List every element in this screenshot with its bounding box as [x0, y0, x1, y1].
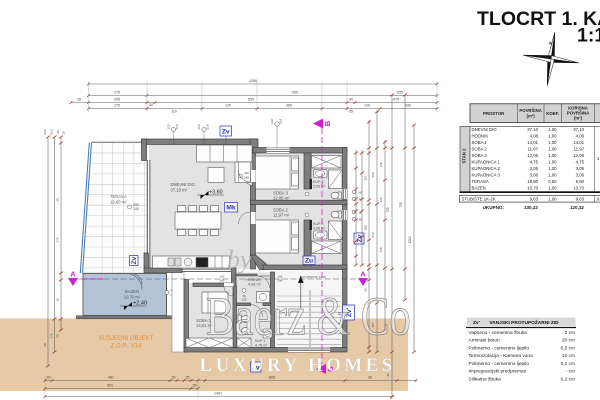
svg-text:20: 20: [47, 376, 51, 380]
svg-text:A: A: [360, 270, 366, 279]
svg-text:SOBA 1: SOBA 1: [472, 140, 488, 145]
svg-text:15: 15: [62, 131, 66, 135]
svg-text:218: 218: [175, 124, 179, 129]
svg-text:TERASA: TERASA: [110, 194, 127, 199]
svg-text:(m²): (m²): [527, 113, 536, 118]
svg-text:B: B: [323, 120, 332, 126]
svg-text:KOEF.: KOEF.: [546, 111, 559, 116]
svg-text:11,97 m²: 11,97 m²: [273, 213, 290, 218]
svg-text:by: by: [227, 245, 252, 274]
svg-text:1,00: 1,00: [548, 160, 557, 165]
svg-text:11,97: 11,97: [528, 147, 539, 152]
svg-text:3,06: 3,06: [576, 173, 585, 178]
svg-text:1,00: 1,00: [548, 134, 557, 139]
svg-text:0,2 cm: 0,2 cm: [561, 361, 575, 367]
svg-text:HODNIK: HODNIK: [246, 278, 261, 282]
svg-text:+3,60: +3,60: [209, 190, 223, 196]
svg-text:130: 130: [379, 197, 383, 202]
svg-text:Polimerno - cementno ljepilo: Polimerno - cementno ljepilo: [469, 345, 530, 351]
svg-text:Termoizolacija - Kamena vuna: Termoizolacija - Kamena vuna: [469, 353, 534, 359]
svg-text:330: 330: [405, 104, 411, 108]
svg-text:LUXURY HOMES: LUXURY HOMES: [200, 355, 396, 376]
svg-text:19,80 m²: 19,80 m²: [110, 200, 127, 205]
svg-text:2 cm: 2 cm: [565, 330, 575, 336]
svg-text:KUPAONICA 2: KUPAONICA 2: [472, 166, 501, 171]
svg-text:30: 30: [368, 376, 372, 380]
svg-text:10 cm: 10 cm: [562, 353, 575, 359]
svg-text:219: 219: [206, 124, 210, 129]
svg-text:Vapneno - cementna žbuka: Vapneno - cementna žbuka: [469, 330, 528, 336]
svg-text:25: 25: [193, 384, 197, 388]
svg-text:219: 219: [279, 119, 283, 124]
svg-text:180: 180: [364, 225, 368, 230]
svg-text:12,06: 12,06: [573, 153, 584, 158]
svg-text:20: 20: [172, 376, 176, 380]
svg-text:138: 138: [379, 247, 383, 252]
svg-text:1395: 1395: [249, 79, 257, 83]
svg-text:130,22: 130,22: [524, 205, 538, 210]
svg-text:200: 200: [244, 171, 249, 175]
svg-text:DNEVNI DIO: DNEVNI DIO: [171, 182, 196, 187]
svg-text:Armirani beton: Armirani beton: [469, 338, 501, 344]
svg-text:175: 175: [50, 333, 54, 338]
svg-text:A: A: [70, 270, 76, 279]
svg-text:PROSTOR: PROSTOR: [483, 111, 505, 116]
svg-text:SOBA 2: SOBA 2: [472, 147, 488, 152]
svg-text:3,06 m²: 3,06 m²: [313, 227, 326, 231]
svg-text:1,00: 1,00: [548, 166, 557, 171]
svg-text:3,06: 3,06: [530, 166, 539, 171]
svg-text:SOBA 3: SOBA 3: [472, 153, 488, 158]
svg-text:(m²): (m²): [574, 115, 583, 120]
svg-text:TERASA: TERASA: [472, 179, 489, 184]
svg-text:10,70 m²: 10,70 m²: [124, 295, 141, 300]
svg-text:STAN 2: STAN 2: [461, 148, 466, 164]
svg-text:Zv': Zv': [473, 320, 480, 326]
svg-text:120: 120: [225, 104, 231, 108]
svg-text:Baerz & Co: Baerz & Co: [206, 285, 411, 346]
svg-text:175: 175: [56, 237, 60, 242]
svg-text:Impregnacijski predpremaz: Impregnacijski predpremaz: [469, 369, 527, 375]
svg-text:DNEVNI DIO: DNEVNI DIO: [472, 127, 498, 132]
svg-text:37,10 m²: 37,10 m²: [171, 188, 188, 193]
svg-text:356: 356: [286, 104, 292, 108]
svg-text:1,00: 1,00: [548, 196, 557, 201]
svg-text:SUSJEDNI OBJEKT: SUSJEDNI OBJEKT: [99, 336, 154, 342]
svg-text:KUPAONICA 3: KUPAONICA 3: [472, 173, 501, 178]
svg-text:Polimerno - cementno ljepilo: Polimerno - cementno ljepilo: [469, 361, 530, 367]
svg-text:20: 20: [56, 130, 60, 134]
svg-text:37,10: 37,10: [573, 127, 584, 132]
svg-text:1,00: 1,00: [548, 173, 557, 178]
svg-text:28: 28: [77, 98, 81, 102]
svg-text:1210: 1210: [408, 236, 412, 243]
svg-text:4,08: 4,08: [530, 134, 539, 139]
svg-text:4,08: 4,08: [576, 134, 585, 139]
svg-text:275: 275: [114, 91, 120, 95]
svg-text:11,97: 11,97: [574, 147, 585, 152]
svg-text:Zv: Zv: [131, 256, 138, 264]
svg-text:30: 30: [149, 103, 153, 107]
svg-text:Zv: Zv: [222, 128, 230, 135]
svg-text:29: 29: [56, 334, 60, 338]
svg-text:12,06 m²: 12,06 m²: [273, 196, 290, 201]
svg-text:1491: 1491: [214, 392, 222, 396]
svg-text:UKUPNO:: UKUPNO:: [483, 205, 505, 210]
svg-text:14,01: 14,01: [573, 140, 584, 145]
svg-text:130: 130: [270, 119, 274, 124]
svg-text:865: 865: [269, 376, 275, 380]
svg-text:1,00: 1,00: [548, 153, 557, 158]
svg-text:28: 28: [43, 343, 47, 347]
svg-text:65: 65: [349, 109, 353, 113]
svg-text:BAZEN: BAZEN: [472, 186, 486, 191]
svg-text:501: 501: [107, 384, 113, 388]
svg-text:37,10: 37,10: [527, 127, 538, 132]
svg-text:Z.O.P.: V14: Z.O.P.: V14: [111, 344, 142, 350]
svg-text:9,90: 9,90: [576, 179, 585, 184]
svg-text:9,63: 9,63: [576, 196, 585, 201]
svg-text:0,5 cm: 0,5 cm: [561, 345, 575, 351]
svg-text:110: 110: [171, 109, 177, 113]
svg-text:Zu: Zu: [305, 258, 313, 265]
svg-text:Mk: Mk: [226, 205, 236, 212]
svg-text:STUBIŠTE 1K-2K: STUBIŠTE 1K-2K: [462, 196, 496, 201]
svg-text:10,70: 10,70: [573, 186, 584, 191]
svg-text:HODNIK: HODNIK: [472, 134, 489, 139]
svg-text:4,75: 4,75: [576, 160, 585, 165]
svg-text:560: 560: [371, 172, 375, 177]
svg-text:BAZEN: BAZEN: [125, 289, 139, 294]
svg-text:0,2 cm: 0,2 cm: [561, 376, 575, 382]
svg-text:30: 30: [349, 98, 353, 102]
svg-text:14,01: 14,01: [527, 140, 538, 145]
svg-text:240: 240: [244, 176, 249, 180]
svg-text:610: 610: [371, 232, 375, 237]
svg-text:287: 287: [364, 175, 368, 180]
svg-text:3,06 m²: 3,06 m²: [313, 185, 326, 189]
svg-text:255: 255: [114, 98, 120, 102]
svg-text:Silikatna žbuka: Silikatna žbuka: [469, 376, 502, 382]
svg-text:1,00: 1,00: [548, 127, 557, 132]
svg-text:555: 555: [248, 98, 254, 102]
svg-text:10,70: 10,70: [527, 186, 538, 191]
svg-text:1,00: 1,00: [548, 140, 557, 145]
svg-text:513: 513: [50, 129, 54, 134]
svg-text:0,50: 0,50: [548, 179, 557, 184]
svg-text:565: 565: [292, 91, 298, 95]
svg-text:481: 481: [108, 376, 114, 380]
svg-text:3,06: 3,06: [576, 166, 585, 171]
svg-text:1,00: 1,00: [548, 147, 557, 152]
svg-text:20 cm: 20 cm: [562, 338, 575, 344]
svg-text:475: 475: [393, 98, 399, 102]
svg-text:35: 35: [186, 376, 190, 380]
svg-text:120: 120: [364, 104, 370, 108]
svg-text:1:100: 1:100: [577, 25, 600, 47]
svg-text:120: 120: [167, 124, 171, 129]
svg-text:1,00: 1,00: [548, 186, 557, 191]
svg-text:735: 735: [386, 207, 390, 213]
svg-text:+2,40: +2,40: [133, 301, 147, 307]
svg-text:725: 725: [399, 202, 403, 208]
svg-text:515: 515: [43, 129, 47, 134]
svg-text:240: 240: [133, 207, 139, 211]
svg-text:12,06: 12,06: [527, 153, 538, 158]
svg-text:- cm: - cm: [566, 370, 575, 375]
svg-text:275: 275: [114, 104, 120, 108]
svg-text:138: 138: [379, 162, 383, 167]
svg-text:3,06: 3,06: [530, 173, 539, 178]
svg-text:120,32: 120,32: [570, 205, 584, 210]
svg-text:KUPAONICA 1: KUPAONICA 1: [472, 160, 501, 165]
svg-text:4,75: 4,75: [530, 160, 539, 165]
svg-text:19,80: 19,80: [527, 179, 538, 184]
svg-text:28: 28: [56, 198, 60, 202]
svg-text:ST.(255/278) 14-28: ST.(255/278) 14-28: [302, 275, 326, 279]
svg-text:N: N: [549, 41, 553, 46]
svg-text:9,63: 9,63: [530, 196, 539, 201]
svg-text:535: 535: [397, 91, 403, 95]
svg-text:120: 120: [197, 124, 201, 129]
svg-text:29: 29: [56, 298, 60, 302]
